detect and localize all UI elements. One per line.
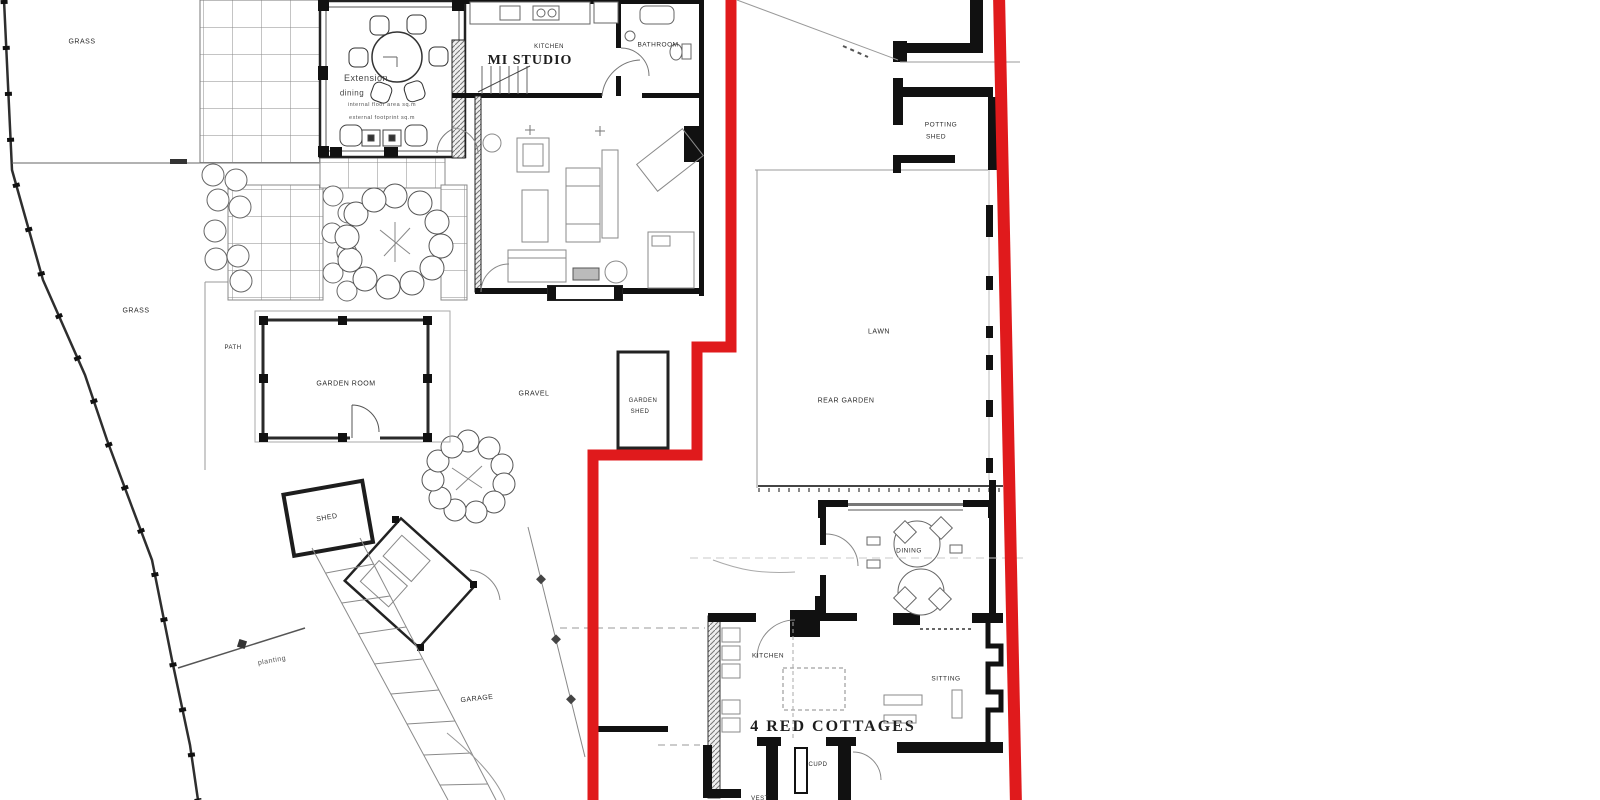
tree-courtyard <box>335 184 453 299</box>
top-right-outbuilding <box>737 0 1020 62</box>
extension-title-label: Extension <box>344 73 388 83</box>
garden-room <box>255 311 450 442</box>
cottage-name-label: 4 RED COTTAGES <box>750 718 916 736</box>
extension-note2-label: external footprint sq.m <box>349 115 415 121</box>
site-plan-drawing: GRASS GRASS PATH Extension dining intern… <box>0 0 1600 800</box>
lawn-label: LAWN <box>868 329 890 336</box>
plan-linework <box>0 0 1600 800</box>
grass-mid-label: GRASS <box>122 308 149 315</box>
east-garden-fence <box>528 527 585 757</box>
path-label: PATH <box>224 345 241 351</box>
rear-garden-label: REAR GARDEN <box>818 398 875 405</box>
cottage-sitting-label: SITTING <box>931 676 960 683</box>
potting-shed-label-1: POTTING <box>925 122 957 129</box>
house-kitchen-label: KITCHEN <box>534 44 564 50</box>
garden-shed-label-2: SHED <box>631 409 650 415</box>
studio-label: MI STUDIO <box>488 53 573 69</box>
garden-room-label: GARDEN ROOM <box>316 381 375 388</box>
garden-shed-label-1: GARDEN <box>629 398 658 404</box>
cottage-cupd-label: CUPD <box>808 762 827 768</box>
tree-gravel <box>422 430 515 523</box>
extension-sub-label: dining <box>340 89 364 98</box>
extension-note1-label: internal floor area sq.m <box>348 102 416 108</box>
cottage <box>560 480 1025 800</box>
cottage-kitchen-label: KITCHEN <box>752 653 784 660</box>
gravel-label: GRAVEL <box>519 391 550 398</box>
potting-shed-label-2: SHED <box>926 134 946 141</box>
grass-top-label: GRASS <box>68 39 95 46</box>
driveway <box>312 538 505 800</box>
cottage-dining-label: DINING <box>896 548 922 555</box>
bathroom-label: BATHROOM <box>637 42 678 49</box>
cottage-vest-label: VEST <box>751 796 769 800</box>
